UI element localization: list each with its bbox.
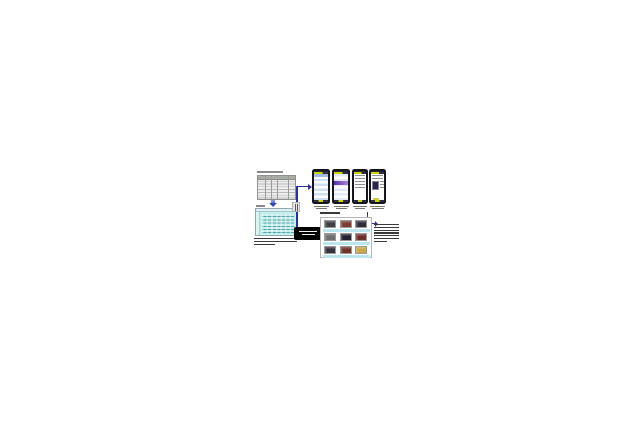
text-smudge-line xyxy=(334,206,349,207)
text-smudge-line xyxy=(256,205,265,207)
text-smudge-line xyxy=(374,230,399,231)
down-arrow-icon xyxy=(269,203,277,207)
window-side-column xyxy=(256,212,260,235)
text-smudge-line xyxy=(299,231,317,232)
photo-thumbnail xyxy=(324,220,336,228)
connector-line-horizontal xyxy=(296,186,308,188)
diagram-canvas xyxy=(0,0,640,426)
phone-3 xyxy=(352,169,368,204)
album-row-label-strip xyxy=(323,229,370,232)
text-smudge-line xyxy=(374,232,399,233)
text-smudge-line xyxy=(374,241,387,242)
album-grid-rows xyxy=(321,220,371,258)
pc-window-caption xyxy=(254,238,298,247)
text-smudge-line xyxy=(374,238,399,239)
photo-thumbnail xyxy=(355,246,367,254)
table-title xyxy=(257,171,283,173)
table-column-divider xyxy=(265,176,266,199)
text-smudge-line xyxy=(374,235,399,236)
text-smudge-line xyxy=(314,206,329,207)
text-smudge-line xyxy=(254,244,275,245)
text-smudge-line xyxy=(370,206,385,207)
album-grid-caption xyxy=(320,212,340,214)
phone-4-caption xyxy=(368,206,387,211)
album-row-label-strip xyxy=(323,242,370,245)
album-grid-panel xyxy=(320,217,372,258)
text-smudge-line xyxy=(374,224,399,225)
text-smudge-line xyxy=(355,208,365,209)
phone-1-caption xyxy=(311,206,331,211)
album-row-label-strip xyxy=(323,255,370,258)
phone-4 xyxy=(369,169,386,204)
network-label-chip xyxy=(292,202,300,212)
text-smudge-line xyxy=(372,208,384,209)
table-column-divider xyxy=(288,176,289,199)
note-text-block xyxy=(374,224,400,244)
pc-application-window xyxy=(255,208,297,236)
photo-thumbnail xyxy=(324,233,336,241)
table-column-divider xyxy=(271,176,272,199)
text-smudge-line xyxy=(302,234,315,235)
text-smudge-line xyxy=(336,208,347,209)
text-smudge-line xyxy=(254,241,297,242)
text-smudge-line xyxy=(374,227,399,228)
purple-banner xyxy=(334,181,349,185)
phone-2-caption xyxy=(331,206,351,211)
photo-thumbnail xyxy=(340,233,352,241)
server-box-label xyxy=(294,231,322,237)
text-smudge-line xyxy=(320,212,340,214)
photo-thumbnail xyxy=(324,246,336,254)
phone-3-caption xyxy=(351,206,369,211)
phone-1 xyxy=(312,169,330,204)
table-column-divider xyxy=(277,176,278,199)
text-smudge-line xyxy=(353,206,367,207)
window-titlebar xyxy=(256,209,296,212)
window-text-content xyxy=(262,214,294,233)
photo-thumbnail xyxy=(340,220,352,228)
text-smudge-line xyxy=(254,238,297,239)
photo-thumbnail xyxy=(340,246,352,254)
text-smudge-line xyxy=(316,208,327,209)
text-smudge-line xyxy=(257,171,283,173)
pc-window-label xyxy=(256,205,265,207)
photo-thumbnail xyxy=(355,220,367,228)
data-table xyxy=(257,175,296,200)
photo-thumbnail xyxy=(355,233,367,241)
server-box xyxy=(294,227,322,240)
photo-thumbnail xyxy=(372,181,379,191)
phone-2 xyxy=(332,169,350,204)
